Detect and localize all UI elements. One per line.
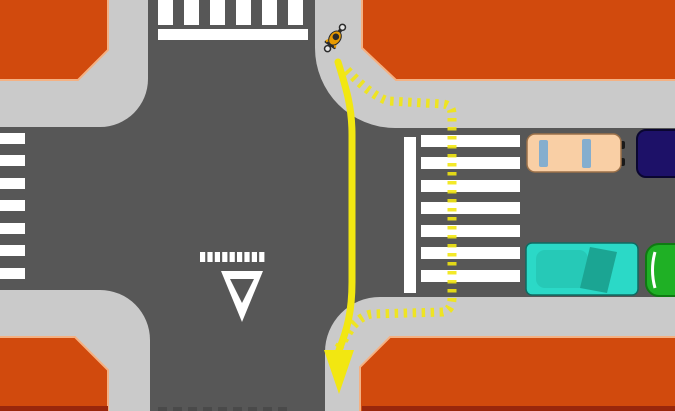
car-body: [646, 244, 675, 296]
car-roof: [536, 250, 588, 288]
crosswalk-stripe: [0, 200, 25, 211]
crosswalk-stripe: [421, 157, 520, 169]
crosswalk-stripe: [0, 268, 25, 279]
building-block-top-right: [362, 0, 675, 80]
faint-stripe: [158, 407, 167, 411]
crosswalk-stripe: [0, 245, 25, 256]
faint-stripe: [203, 407, 212, 411]
yield-dash: [222, 252, 227, 262]
car-window: [582, 139, 591, 168]
yield-dash: [230, 252, 235, 262]
diagram-canvas: [0, 0, 675, 411]
crosswalk-stripe: [0, 223, 25, 234]
crosswalk-stripe: [184, 0, 199, 25]
building-block-bottom-right: [360, 337, 675, 411]
faint-stripe: [263, 407, 272, 411]
bottom-road-faint-marks: [158, 407, 287, 411]
crosswalk-stripe: [421, 225, 520, 237]
stop-line-right: [404, 137, 416, 293]
yield-dash: [259, 252, 264, 262]
crosswalk-stripe: [421, 135, 520, 147]
block-bottom-edge-left: [0, 406, 108, 411]
crosswalk-stripe: [288, 0, 303, 25]
intersection-diagram: [0, 0, 675, 411]
faint-stripe: [233, 407, 242, 411]
yield-dash: [252, 252, 257, 262]
navy-car: [637, 130, 675, 177]
faint-stripe: [278, 407, 287, 411]
block-bottom-edge-right: [362, 406, 675, 411]
crosswalk-stripe: [421, 270, 520, 282]
stop-line-top: [158, 29, 308, 40]
yield-dash: [207, 252, 212, 262]
beige-car: [527, 134, 625, 172]
crosswalk-stripe: [421, 247, 520, 259]
crosswalk-stripe: [0, 178, 25, 189]
car-window: [539, 140, 548, 167]
crosswalk-stripe: [0, 133, 25, 144]
faint-stripe: [173, 407, 182, 411]
teal-car: [526, 243, 638, 295]
crosswalk-stripe: [158, 0, 173, 25]
crosswalk-stripe: [262, 0, 277, 25]
yield-dash: [215, 252, 220, 262]
crosswalk-stripe: [421, 202, 520, 214]
yield-dash: [237, 252, 242, 262]
crosswalk-stripe: [236, 0, 251, 25]
yield-dash: [200, 252, 205, 262]
green-car: [646, 244, 675, 296]
crosswalk-stripe: [0, 155, 25, 166]
faint-stripe: [248, 407, 257, 411]
faint-stripe: [218, 407, 227, 411]
crosswalk-stripe: [210, 0, 225, 25]
faint-stripe: [188, 407, 197, 411]
crosswalk-stripe: [421, 180, 520, 192]
yield-dash: [244, 252, 249, 262]
